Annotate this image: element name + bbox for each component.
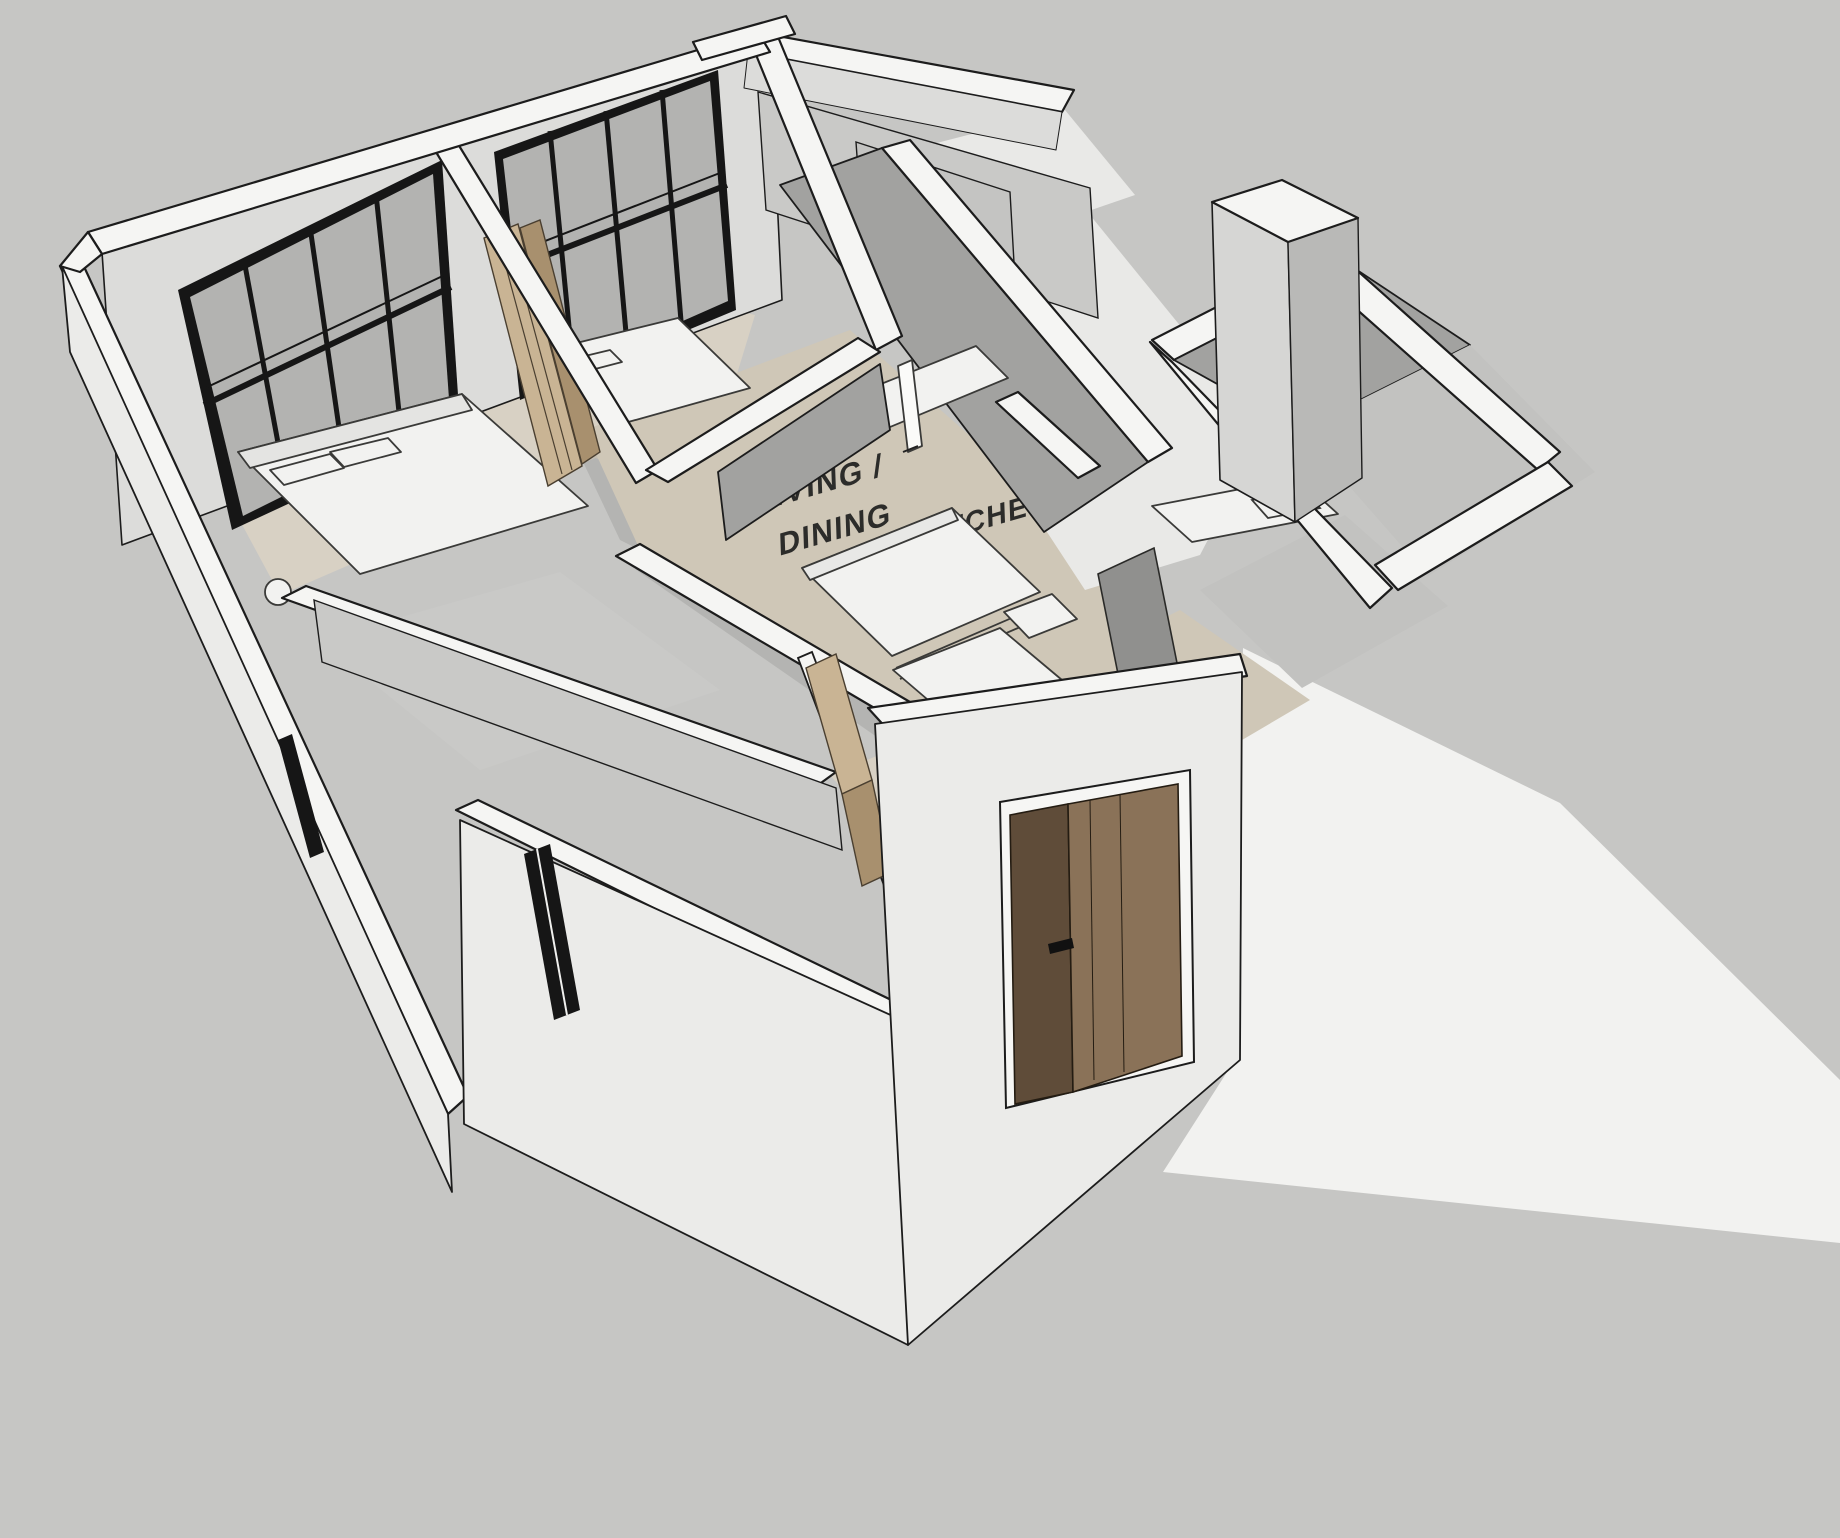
shelter-column <box>1212 180 1362 522</box>
entry-door-leaf-light <box>1068 784 1182 1092</box>
entry-door <box>1000 770 1194 1108</box>
entry-door-leaf-dark <box>1010 804 1073 1104</box>
shelter-left-face <box>1212 202 1295 522</box>
floor-plan-3d-view: LIVING / DINING KITCHEN <box>0 0 1840 1538</box>
shelter-right-face <box>1288 218 1362 522</box>
bed1-side-table <box>265 579 291 605</box>
